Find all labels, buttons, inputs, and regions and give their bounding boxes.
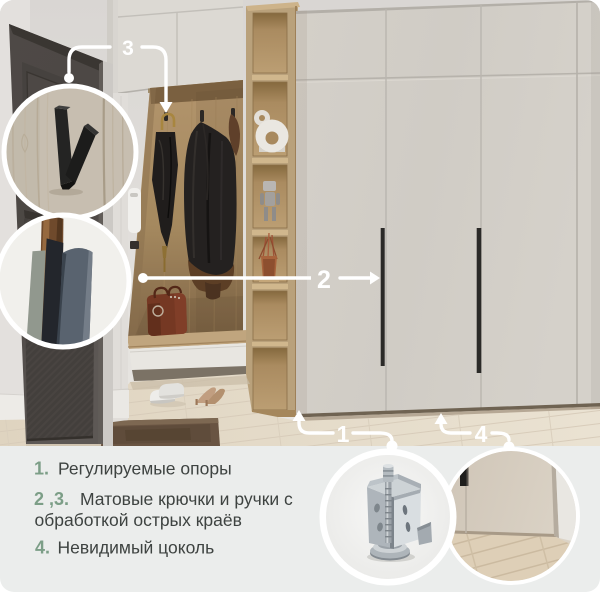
svg-text:3: 3 xyxy=(122,37,134,60)
svg-text:обработкой острых краёв: обработкой острых краёв xyxy=(35,510,242,530)
svg-text:1.Регулируемые опоры: 1.Регулируемые опоры xyxy=(34,459,232,479)
svg-text:4.Невидимый цоколь: 4.Невидимый цоколь xyxy=(35,538,214,558)
svg-text:2: 2 xyxy=(317,266,331,294)
svg-text:4: 4 xyxy=(475,421,488,447)
svg-text:1: 1 xyxy=(337,421,350,447)
